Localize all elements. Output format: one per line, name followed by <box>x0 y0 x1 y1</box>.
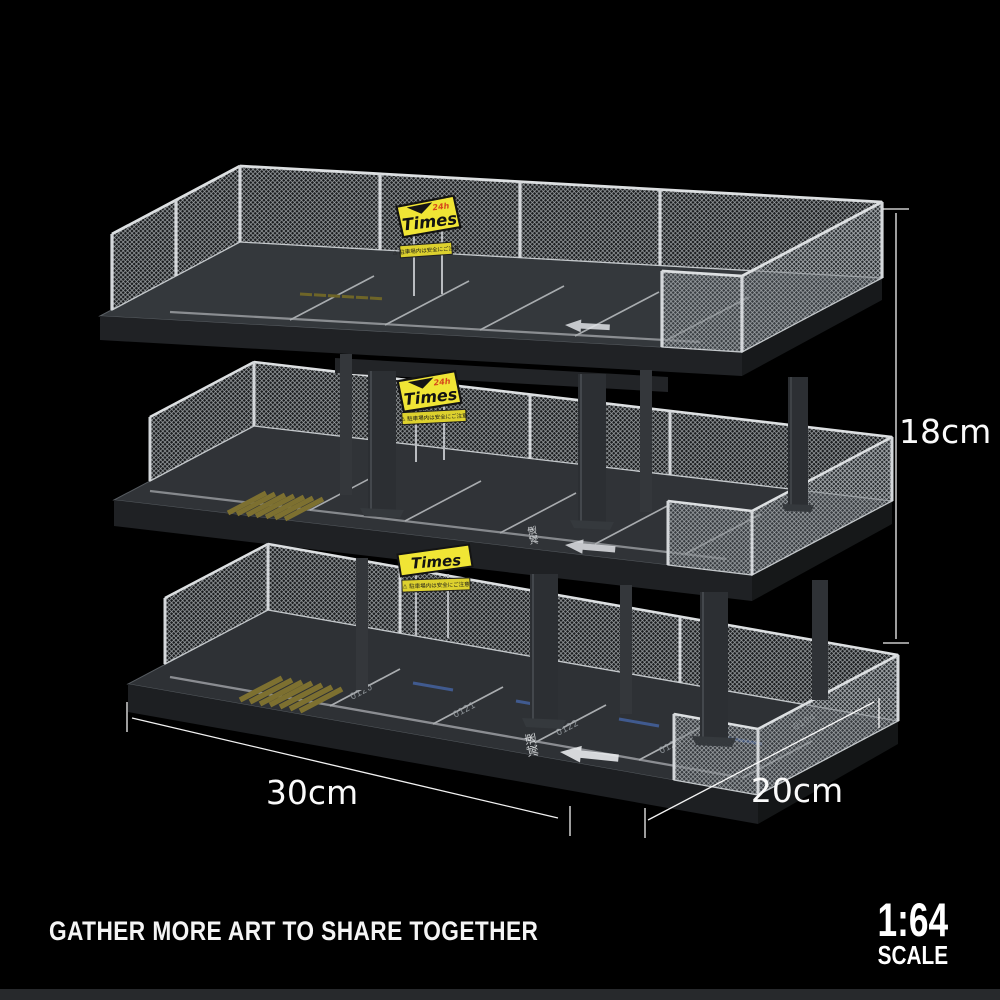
dimension-depth-label: 20cm <box>751 771 843 810</box>
dimension-width-label: 30cm <box>266 773 358 812</box>
scale-ratio: 1:64 <box>877 899 948 940</box>
level-top: ⚠ 駐車場内は安全にご注意 24h Times <box>100 166 882 376</box>
slim-pillar <box>620 585 632 714</box>
slim-pillar <box>356 558 368 690</box>
warning-sign-bottom: ⚠ 駐車場内は安全にご注意 <box>402 578 470 592</box>
slim-pillar <box>340 354 352 495</box>
footer-bottom-bar <box>0 989 1000 1000</box>
scale-word: SCALE <box>873 942 948 968</box>
times-brand-label: Times <box>410 551 461 572</box>
dimension-height-label: 18cm <box>899 412 991 451</box>
slim-pillar <box>812 580 828 700</box>
diorama-scene: ⚠ 駐車場内は安全にご注意 24h Times <box>0 0 1000 1000</box>
product-photo: ⚠ 駐車場内は安全にご注意 24h Times <box>0 0 1000 1000</box>
scale-badge: 1:64 SCALE <box>854 899 948 968</box>
footer-caption: GATHER MORE ART TO SHARE TOGETHER <box>49 916 538 947</box>
slim-pillar <box>640 370 652 512</box>
